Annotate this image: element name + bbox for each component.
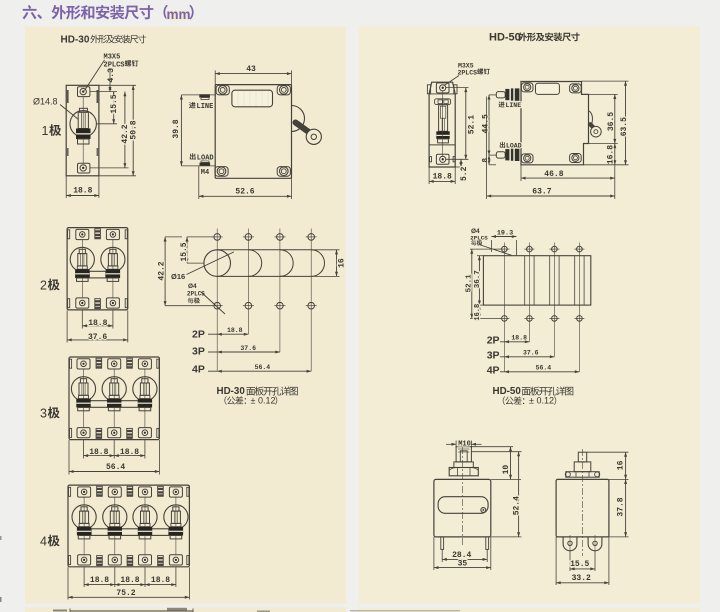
svg-text:19.3: 19.3 [497, 230, 513, 238]
svg-text:36.7: 36.7 [474, 270, 482, 288]
svg-text:2PLCS: 2PLCS [458, 70, 478, 77]
svg-text:16.8: 16.8 [606, 145, 615, 164]
svg-text:63.7: 63.7 [532, 188, 551, 197]
svg-text:18.8: 18.8 [511, 335, 527, 342]
svg-text:10: 10 [502, 465, 511, 475]
svg-text:18.8: 18.8 [120, 576, 139, 585]
svg-text:2PLCS: 2PLCS [104, 62, 125, 70]
svg-text:M10: M10 [458, 440, 471, 448]
svg-text:18.8: 18.8 [89, 448, 108, 457]
svg-text:18.8: 18.8 [151, 576, 170, 585]
svg-text:LOAD: LOAD [197, 155, 214, 163]
svg-text:M4: M4 [201, 169, 209, 177]
svg-text:15.5: 15.5 [570, 560, 589, 569]
svg-text:LINE: LINE [506, 102, 522, 109]
svg-text:HD-50: HD-50 [489, 32, 521, 44]
svg-text:8: 8 [482, 157, 490, 162]
svg-text:43: 43 [246, 65, 256, 74]
svg-text:35: 35 [458, 559, 468, 568]
svg-text:75.2: 75.2 [116, 589, 135, 598]
svg-text:2P: 2P [192, 328, 205, 340]
svg-text:4.3: 4.3 [107, 68, 116, 83]
svg-text:3P: 3P [487, 349, 500, 361]
svg-text:18.8: 18.8 [73, 187, 92, 196]
svg-text:52.1: 52.1 [468, 115, 477, 134]
svg-text:36.5: 36.5 [607, 112, 616, 131]
svg-text:± 0.12: ± 0.12 [529, 396, 554, 406]
svg-text:56.4: 56.4 [536, 365, 552, 372]
svg-text:Ø14.8: Ø14.8 [33, 97, 58, 107]
svg-text:± 0.12: ± 0.12 [251, 395, 276, 405]
svg-text:37.8: 37.8 [616, 497, 625, 516]
svg-text:2PLCS: 2PLCS [470, 234, 488, 241]
svg-text:16: 16 [338, 258, 347, 268]
svg-text:mm: mm [167, 7, 191, 22]
svg-text:18.8: 18.8 [120, 448, 139, 457]
svg-text:4P: 4P [192, 363, 205, 375]
svg-text:M3X5: M3X5 [104, 54, 121, 62]
svg-text:3: 3 [40, 407, 47, 421]
svg-text:33.2: 33.2 [572, 574, 591, 583]
svg-text:44.5: 44.5 [481, 114, 490, 133]
svg-text:2P: 2P [487, 334, 500, 346]
svg-text:56.4: 56.4 [106, 463, 125, 472]
svg-text:3P: 3P [192, 345, 205, 357]
svg-text:HD-30: HD-30 [61, 34, 90, 45]
svg-text:18.8: 18.8 [227, 327, 243, 334]
svg-text:56.4: 56.4 [255, 364, 271, 371]
svg-text:4P: 4P [487, 364, 500, 376]
svg-text:HD-30: HD-30 [217, 386, 246, 397]
svg-text:4: 4 [40, 535, 47, 549]
svg-text:37.6: 37.6 [523, 350, 539, 357]
svg-text:46.8: 46.8 [544, 170, 563, 179]
svg-text:39.8: 39.8 [172, 119, 181, 138]
svg-text:42.2: 42.2 [158, 261, 167, 280]
svg-text:52.1: 52.1 [465, 274, 473, 293]
svg-text:5.2: 5.2 [460, 166, 469, 181]
svg-text:16.8: 16.8 [474, 304, 482, 321]
svg-text:Ø4: Ø4 [188, 283, 197, 290]
svg-text:15.5: 15.5 [180, 242, 189, 261]
svg-text:37.6: 37.6 [240, 345, 256, 352]
svg-text:Ø16: Ø16 [171, 272, 185, 281]
svg-text:1: 1 [42, 124, 49, 138]
svg-text:18.8: 18.8 [433, 172, 452, 181]
svg-text:HD-50: HD-50 [493, 386, 522, 397]
svg-text:16: 16 [616, 460, 625, 470]
svg-text:52.4: 52.4 [512, 496, 521, 515]
svg-text:52.6: 52.6 [235, 187, 254, 196]
svg-text:M3X5: M3X5 [458, 62, 474, 69]
svg-text:2: 2 [40, 279, 47, 293]
svg-text:LINE: LINE [197, 103, 214, 111]
svg-text:18.8: 18.8 [88, 319, 107, 328]
svg-text:LOAD: LOAD [506, 143, 522, 150]
svg-text:37.6: 37.6 [88, 333, 107, 342]
svg-text:50.8: 50.8 [130, 120, 139, 139]
svg-text:63.5: 63.5 [620, 117, 629, 136]
svg-text:18.8: 18.8 [90, 576, 109, 585]
svg-text:15.5: 15.5 [110, 94, 119, 113]
